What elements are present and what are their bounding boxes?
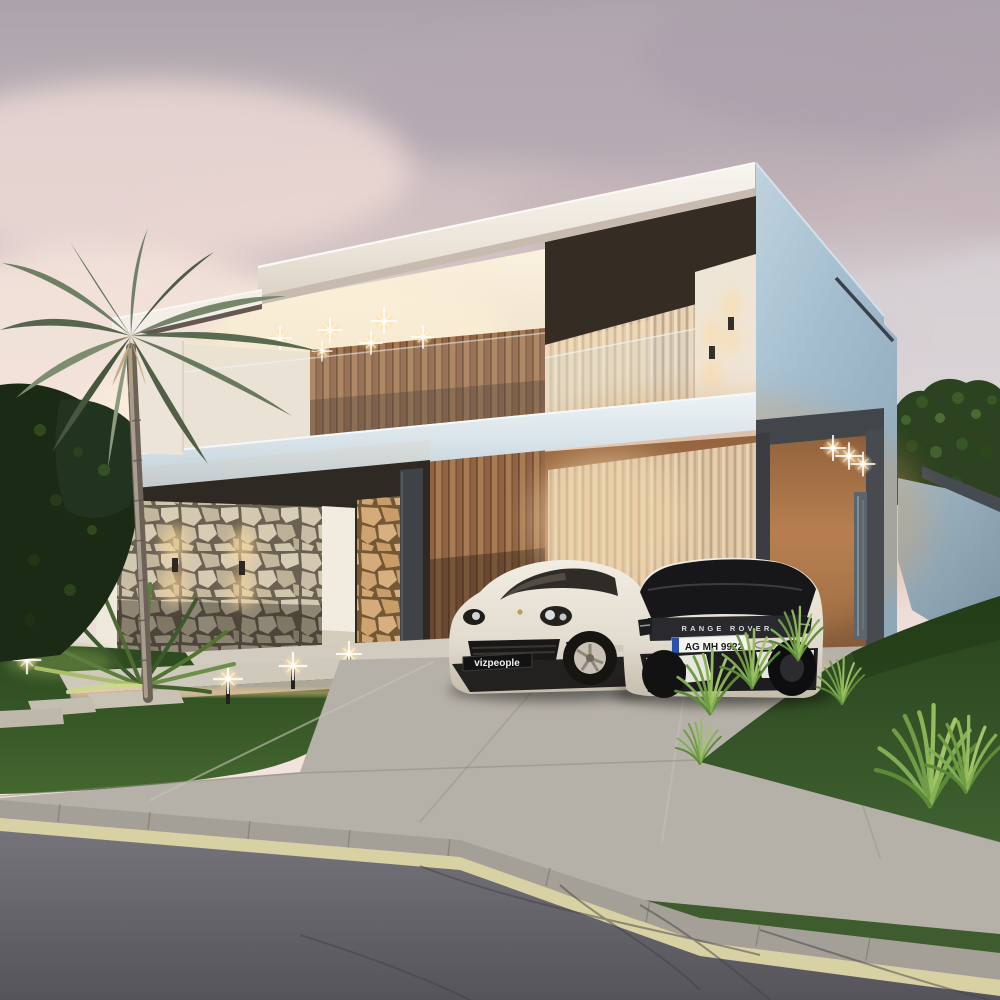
- headlight-right: [540, 606, 572, 626]
- sconce-fixture: [239, 561, 245, 575]
- glass-door: [854, 492, 867, 640]
- scene-render: vizpeople RANGE ROVER AG MH 9922: [0, 0, 1000, 1000]
- taillight-left: [638, 618, 652, 636]
- sconce-fixture: [172, 558, 178, 572]
- sconce-fixture: [709, 346, 715, 359]
- watermark-text: vizpeople: [474, 658, 520, 669]
- sconce-fixture: [728, 317, 734, 330]
- black-roof-and-window: [640, 559, 816, 620]
- dark-column: [400, 468, 423, 668]
- hood-crest: [517, 609, 522, 614]
- tailgate-badge-text: RANGE ROVER: [681, 624, 772, 633]
- render-canvas: vizpeople RANGE ROVER AG MH 9922: [0, 0, 1000, 1000]
